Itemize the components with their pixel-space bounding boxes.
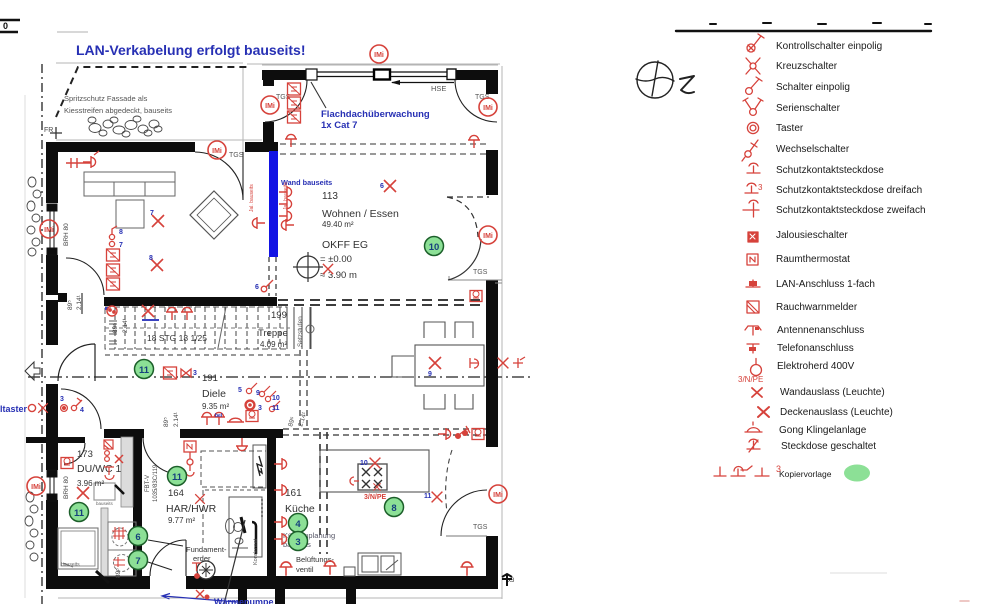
svg-text:173: 173 bbox=[77, 449, 93, 460]
svg-text:Jalousieschalter: Jalousieschalter bbox=[776, 230, 848, 241]
svg-text:3: 3 bbox=[60, 396, 64, 403]
svg-text:Spritzschutz Fassade als: Spritzschutz Fassade als bbox=[64, 94, 148, 103]
svg-text:Kondensat: Kondensat bbox=[253, 538, 259, 565]
svg-text:Treppe: Treppe bbox=[258, 328, 288, 339]
svg-text:11: 11 bbox=[139, 365, 150, 376]
svg-text:DU/WC 1: DU/WC 1 bbox=[77, 463, 121, 475]
svg-text:Kopiervorlage: Kopiervorlage bbox=[779, 469, 832, 479]
svg-text:18 STG 18 1/25: 18 STG 18 1/25 bbox=[147, 333, 207, 343]
svg-text:4: 4 bbox=[295, 519, 301, 530]
svg-text:LAN-Anschluss 1-fach: LAN-Anschluss 1-fach bbox=[776, 279, 875, 290]
svg-text:LAN-Verkabelung erfolgt bausei: LAN-Verkabelung erfolgt bauseits! bbox=[76, 42, 305, 58]
svg-text:ltaster: ltaster bbox=[0, 404, 28, 414]
svg-text:113: 113 bbox=[322, 191, 338, 202]
svg-text:4: 4 bbox=[80, 407, 84, 414]
svg-text:Belüftungs-: Belüftungs- bbox=[296, 555, 334, 564]
svg-text:89⁵: 89⁵ bbox=[112, 323, 119, 333]
svg-text:9.35 m²: 9.35 m² bbox=[202, 402, 229, 411]
svg-text:164: 164 bbox=[168, 488, 184, 499]
svg-text:7: 7 bbox=[135, 556, 140, 567]
svg-text:9: 9 bbox=[428, 371, 432, 378]
svg-text:Schalter einpolig: Schalter einpolig bbox=[776, 82, 850, 93]
svg-text:BRH 80: BRH 80 bbox=[63, 476, 70, 499]
svg-text:Kontrollschalter einpolig: Kontrollschalter einpolig bbox=[776, 41, 882, 52]
svg-text:7: 7 bbox=[150, 210, 154, 217]
svg-text:Steckdose geschaltet: Steckdose geschaltet bbox=[781, 441, 876, 452]
svg-text:OKFF EG: OKFF EG bbox=[322, 239, 368, 251]
svg-text:TGS: TGS bbox=[229, 152, 244, 159]
svg-text:Gong Klingelanlage: Gong Klingelanlage bbox=[779, 425, 867, 436]
svg-text:Telefonanschluss: Telefonanschluss bbox=[777, 343, 854, 354]
svg-text:49.40 m²: 49.40 m² bbox=[322, 220, 354, 229]
svg-text:Kiesstreifen abgedeckt, bausei: Kiesstreifen abgedeckt, bauseits bbox=[64, 106, 172, 115]
svg-text:Rauchwarnmelder: Rauchwarnmelder bbox=[776, 302, 858, 313]
svg-text:9: 9 bbox=[256, 390, 260, 397]
svg-text:Elektroherd 400V: Elektroherd 400V bbox=[777, 361, 855, 372]
svg-text:89⁵: 89⁵ bbox=[115, 568, 122, 578]
svg-text:ventil: ventil bbox=[296, 565, 314, 574]
svg-text:2.14¹: 2.14¹ bbox=[173, 411, 180, 427]
svg-text:3.96 m²: 3.96 m² bbox=[77, 479, 104, 488]
svg-text:TGS: TGS bbox=[473, 269, 488, 276]
svg-text:191: 191 bbox=[202, 373, 218, 384]
svg-text:erder: erder bbox=[193, 554, 211, 563]
svg-text:6: 6 bbox=[380, 183, 384, 190]
svg-text:Taster: Taster bbox=[776, 123, 804, 134]
svg-text:11: 11 bbox=[172, 472, 183, 483]
svg-text:9.77 m²: 9.77 m² bbox=[168, 516, 195, 525]
svg-text:FBT-V: FBT-V bbox=[145, 475, 151, 492]
svg-text:Setzstufen: Setzstufen bbox=[297, 316, 304, 347]
svg-text:2.14¹: 2.14¹ bbox=[122, 317, 129, 333]
svg-text:6: 6 bbox=[255, 284, 259, 291]
svg-text:8: 8 bbox=[391, 503, 396, 514]
svg-text:8: 8 bbox=[149, 255, 153, 262]
svg-text:89⁵: 89⁵ bbox=[163, 417, 170, 427]
svg-text:0: 0 bbox=[3, 21, 8, 31]
svg-text:3: 3 bbox=[776, 464, 781, 474]
svg-text:BRH 80: BRH 80 bbox=[63, 223, 70, 246]
svg-text:bauseits: bauseits bbox=[96, 501, 114, 506]
svg-text:11: 11 bbox=[424, 493, 432, 500]
svg-text:Wechselschalter: Wechselschalter bbox=[776, 144, 850, 155]
svg-text:6: 6 bbox=[135, 532, 140, 543]
svg-text:3: 3 bbox=[193, 370, 197, 377]
svg-text:bel: bel bbox=[215, 413, 223, 419]
svg-text:8: 8 bbox=[119, 229, 123, 236]
svg-text:Schutzkontaktsteckdose dreifac: Schutzkontaktsteckdose dreifach bbox=[776, 185, 922, 196]
svg-text:Serienschalter: Serienschalter bbox=[776, 103, 841, 114]
svg-text:Fundament-: Fundament- bbox=[186, 545, 227, 554]
svg-text:bauseits: bauseits bbox=[61, 562, 80, 568]
svg-text:Diele: Diele bbox=[202, 388, 226, 400]
svg-text:Antennenanschluss: Antennenanschluss bbox=[777, 325, 864, 336]
svg-text:Jal. bauseits: Jal. bauseits bbox=[249, 184, 255, 212]
svg-text:4.09 m²: 4.09 m² bbox=[260, 340, 287, 349]
svg-text:3: 3 bbox=[758, 183, 763, 192]
svg-text:TGS: TGS bbox=[473, 524, 488, 531]
svg-text:5: 5 bbox=[238, 387, 242, 394]
svg-text:= ±0.00: = ±0.00 bbox=[320, 254, 352, 265]
svg-text:3/N/PE: 3/N/PE bbox=[364, 494, 387, 501]
svg-text:Schutzkontaktsteckdose: Schutzkontaktsteckdose bbox=[776, 165, 884, 176]
svg-text:7: 7 bbox=[119, 242, 123, 249]
svg-text:3: 3 bbox=[258, 405, 262, 412]
svg-text:HAR/HWR: HAR/HWR bbox=[166, 503, 217, 515]
svg-text:Wohnen / Essen: Wohnen / Essen bbox=[322, 208, 399, 220]
svg-text:10: 10 bbox=[272, 395, 280, 402]
svg-text:10: 10 bbox=[429, 242, 440, 253]
svg-text:10: 10 bbox=[360, 460, 368, 467]
svg-text:Kreuzschalter: Kreuzschalter bbox=[776, 61, 838, 72]
svg-text:Flachdachüberwachung: Flachdachüberwachung bbox=[321, 109, 430, 120]
svg-text:199: 199 bbox=[271, 310, 287, 321]
svg-text:3/N/PE: 3/N/PE bbox=[738, 375, 763, 384]
svg-text:Schutzkontaktsteckdose zweifac: Schutzkontaktsteckdose zweifach bbox=[776, 205, 926, 216]
svg-text:HSE: HSE bbox=[431, 84, 446, 93]
svg-text:Wandauslass (Leuchte): Wandauslass (Leuchte) bbox=[780, 387, 885, 398]
svg-text:Raumthermostat: Raumthermostat bbox=[776, 254, 850, 265]
svg-text:89⁵: 89⁵ bbox=[67, 300, 74, 310]
svg-text:11: 11 bbox=[74, 508, 85, 519]
svg-text:Deckenauslass (Leuchte): Deckenauslass (Leuchte) bbox=[780, 407, 893, 418]
svg-text:3: 3 bbox=[295, 537, 300, 548]
svg-text:1x Cat 7: 1x Cat 7 bbox=[321, 120, 357, 131]
svg-text:11: 11 bbox=[272, 405, 280, 412]
svg-text:1035/83C/119: 1035/83C/119 bbox=[153, 464, 159, 502]
svg-text:161: 161 bbox=[285, 488, 302, 499]
